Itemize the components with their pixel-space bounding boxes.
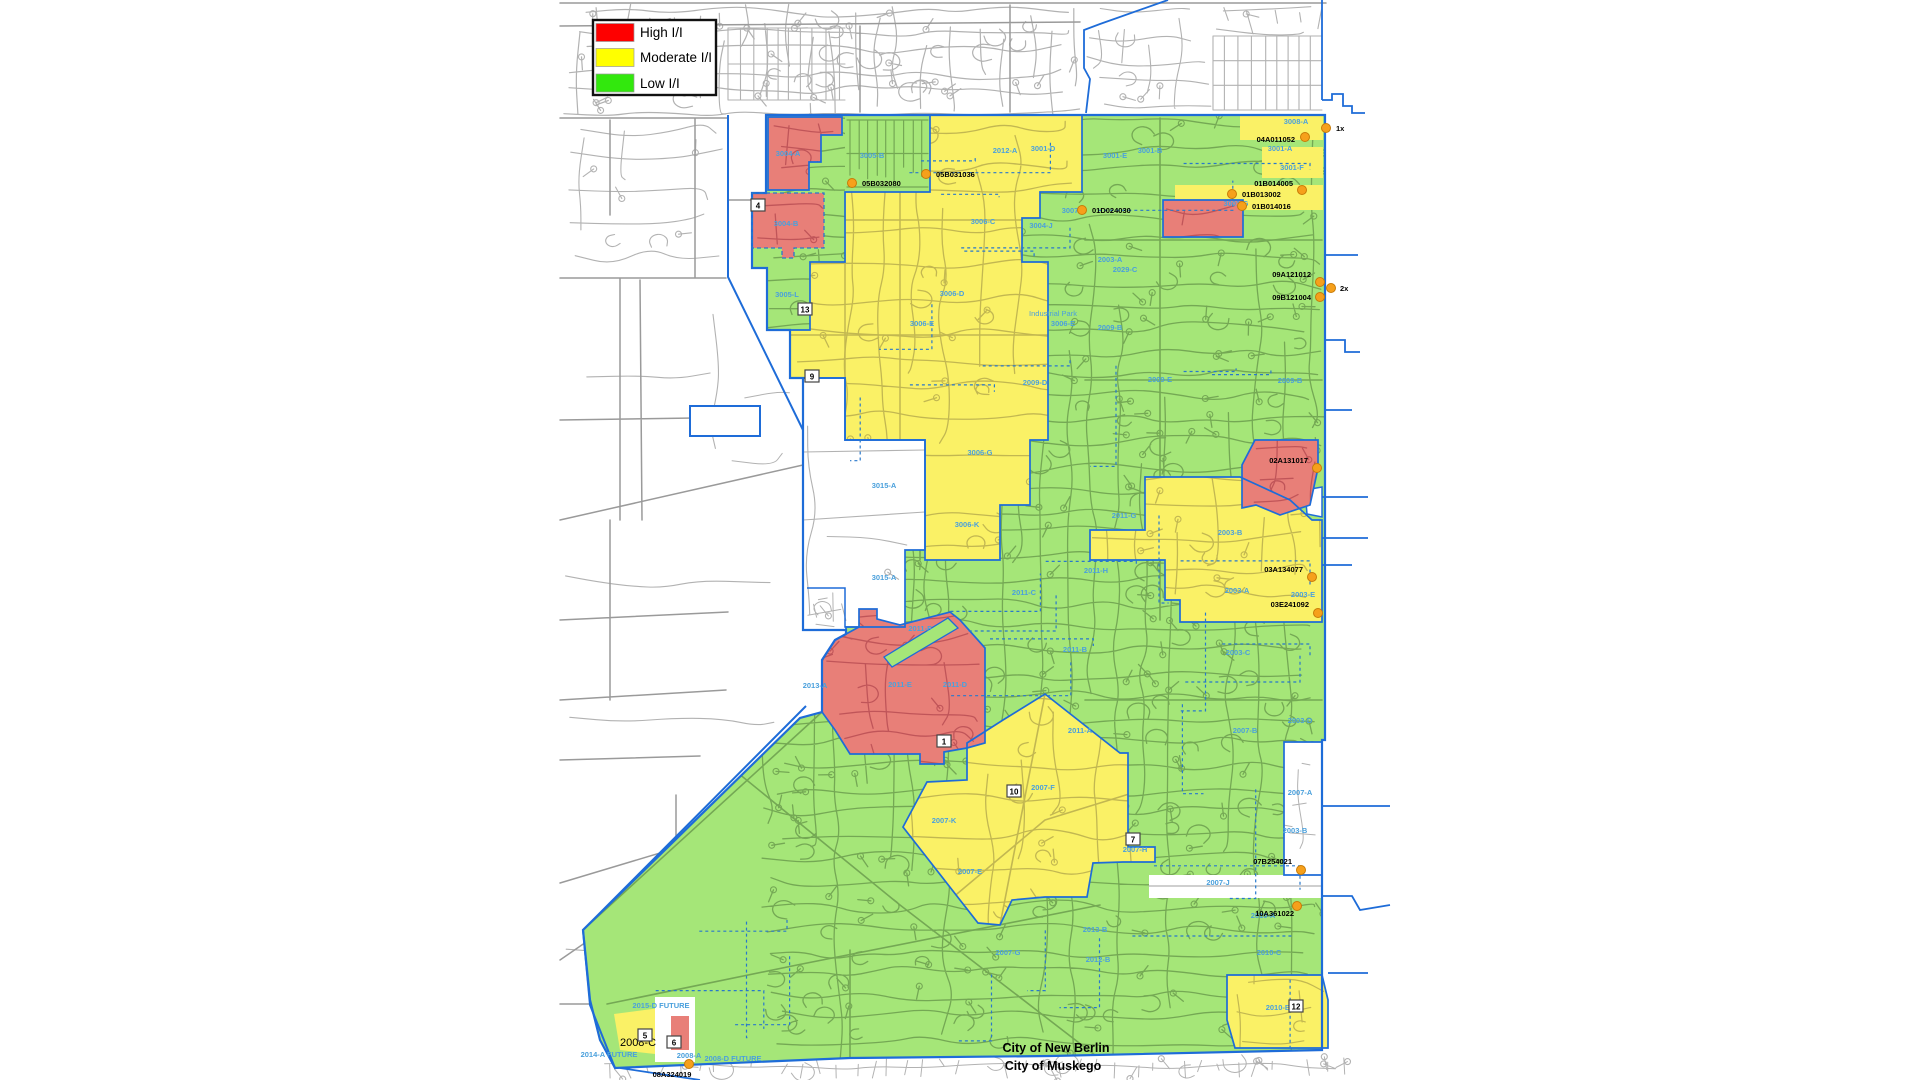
svg-text:01B013002: 01B013002 bbox=[1242, 190, 1281, 199]
svg-text:2010-B: 2010-B bbox=[1266, 1003, 1291, 1012]
svg-text:1: 1 bbox=[942, 738, 947, 747]
svg-text:2007-F: 2007-F bbox=[1031, 783, 1055, 792]
svg-text:3001-F: 3001-F bbox=[1280, 163, 1304, 172]
svg-text:3005-L: 3005-L bbox=[775, 290, 799, 299]
svg-text:09B121004: 09B121004 bbox=[1272, 293, 1312, 302]
svg-text:Moderate I/I: Moderate I/I bbox=[640, 50, 712, 65]
svg-text:3006-E: 3006-E bbox=[910, 319, 934, 328]
svg-text:3006-E: 3006-E bbox=[1051, 319, 1075, 328]
svg-text:City of New Berlin: City of New Berlin bbox=[1003, 1041, 1110, 1055]
svg-text:10A361022: 10A361022 bbox=[1255, 909, 1294, 918]
svg-text:2011-C: 2011-C bbox=[1012, 588, 1037, 597]
svg-text:2011-H: 2011-H bbox=[1084, 566, 1108, 575]
svg-text:2029-C: 2029-C bbox=[1113, 265, 1138, 274]
svg-text:05B031036: 05B031036 bbox=[936, 170, 975, 179]
svg-text:09A121012: 09A121012 bbox=[1272, 270, 1311, 279]
svg-text:2011-E: 2011-E bbox=[888, 680, 912, 689]
svg-text:01B014016: 01B014016 bbox=[1252, 202, 1291, 211]
svg-text:2007-K: 2007-K bbox=[932, 816, 957, 825]
svg-text:3004-J: 3004-J bbox=[1029, 221, 1052, 230]
svg-text:2012-A: 2012-A bbox=[993, 146, 1018, 155]
svg-text:2011-A: 2011-A bbox=[1068, 726, 1093, 735]
svg-text:3001-A: 3001-A bbox=[1268, 144, 1293, 153]
svg-text:3008-A: 3008-A bbox=[1284, 117, 1309, 126]
svg-text:02A131017: 02A131017 bbox=[1269, 456, 1308, 465]
svg-text:2003-A: 2003-A bbox=[1098, 255, 1123, 264]
svg-text:07B254021: 07B254021 bbox=[1253, 857, 1292, 866]
svg-text:3001-E: 3001-E bbox=[1103, 151, 1127, 160]
svg-text:2007-G: 2007-G bbox=[995, 948, 1020, 957]
svg-text:2009-D: 2009-D bbox=[1023, 378, 1048, 387]
svg-text:08A324019: 08A324019 bbox=[653, 1070, 692, 1079]
svg-text:10: 10 bbox=[1010, 788, 1019, 797]
svg-text:2007-A: 2007-A bbox=[1288, 788, 1313, 797]
svg-text:12: 12 bbox=[1292, 1003, 1301, 1012]
svg-text:9: 9 bbox=[810, 373, 815, 382]
svg-text:2009-B: 2009-B bbox=[1098, 323, 1123, 332]
svg-text:4: 4 bbox=[756, 202, 761, 211]
svg-text:2010-C: 2010-C bbox=[1257, 948, 1282, 957]
svg-text:01B014005: 01B014005 bbox=[1254, 179, 1293, 188]
svg-text:2007-J: 2007-J bbox=[1206, 878, 1229, 887]
svg-text:3001-B: 3001-B bbox=[1138, 146, 1163, 155]
svg-text:2011-B: 2011-B bbox=[1063, 645, 1088, 654]
svg-text:3006-K: 3006-K bbox=[955, 520, 980, 529]
svg-text:2011-F: 2011-F bbox=[908, 624, 932, 633]
svg-text:2003-B: 2003-B bbox=[1283, 826, 1308, 835]
svg-text:6: 6 bbox=[672, 1039, 677, 1048]
svg-text:2007-E: 2007-E bbox=[958, 867, 982, 876]
svg-text:Industrial Park: Industrial Park bbox=[1029, 309, 1077, 318]
svg-text:2011-G: 2011-G bbox=[1112, 511, 1137, 520]
svg-text:2014-A FUTURE: 2014-A FUTURE bbox=[581, 1050, 638, 1059]
svg-text:2013-A: 2013-A bbox=[803, 681, 828, 690]
svg-text:3006-D: 3006-D bbox=[940, 289, 965, 298]
svg-text:3004-B: 3004-B bbox=[774, 219, 799, 228]
svg-text:2003-A: 2003-A bbox=[1225, 586, 1250, 595]
svg-text:3004-A: 3004-A bbox=[776, 149, 801, 158]
svg-text:2003-E: 2003-E bbox=[1291, 590, 1315, 599]
svg-text:High I/I: High I/I bbox=[640, 25, 683, 40]
svg-text:3001-D: 3001-D bbox=[1031, 144, 1056, 153]
svg-text:3005-B: 3005-B bbox=[860, 151, 885, 160]
svg-text:2009-E: 2009-E bbox=[1148, 375, 1172, 384]
svg-text:3006-G: 3006-G bbox=[967, 448, 992, 457]
svg-text:2013-B: 2013-B bbox=[1083, 925, 1108, 934]
svg-text:2008-D FUTURE: 2008-D FUTURE bbox=[704, 1054, 761, 1063]
svg-text:2003-D: 2003-D bbox=[1288, 716, 1313, 725]
svg-text:03A134077: 03A134077 bbox=[1264, 565, 1303, 574]
svg-text:2011-D: 2011-D bbox=[943, 680, 968, 689]
svg-text:3015-A: 3015-A bbox=[872, 573, 897, 582]
svg-text:2007-B: 2007-B bbox=[1233, 726, 1258, 735]
svg-text:2015-D FUTURE: 2015-D FUTURE bbox=[632, 1001, 689, 1010]
svg-text:2003-C: 2003-C bbox=[1226, 648, 1251, 657]
svg-text:3006-C: 3006-C bbox=[971, 217, 996, 226]
svg-text:2x: 2x bbox=[1340, 284, 1349, 293]
svg-text:Low I/I: Low I/I bbox=[640, 76, 680, 91]
svg-text:5: 5 bbox=[643, 1032, 648, 1041]
svg-text:05B032080: 05B032080 bbox=[862, 179, 901, 188]
svg-text:7: 7 bbox=[1131, 836, 1136, 845]
svg-text:2009-B: 2009-B bbox=[1278, 376, 1303, 385]
svg-text:04A011052: 04A011052 bbox=[1257, 135, 1295, 144]
svg-text:03E241092: 03E241092 bbox=[1271, 600, 1309, 609]
svg-text:01D024030: 01D024030 bbox=[1092, 206, 1131, 215]
svg-text:2003-B: 2003-B bbox=[1218, 528, 1243, 537]
svg-text:2007-H: 2007-H bbox=[1123, 845, 1148, 854]
svg-text:2012-B: 2012-B bbox=[1086, 955, 1111, 964]
svg-text:2008-A: 2008-A bbox=[677, 1051, 702, 1060]
svg-text:1x: 1x bbox=[1336, 124, 1345, 133]
svg-text:13: 13 bbox=[801, 306, 810, 315]
svg-text:City of Muskego: City of Muskego bbox=[1005, 1059, 1102, 1073]
svg-text:3015-A: 3015-A bbox=[872, 481, 897, 490]
